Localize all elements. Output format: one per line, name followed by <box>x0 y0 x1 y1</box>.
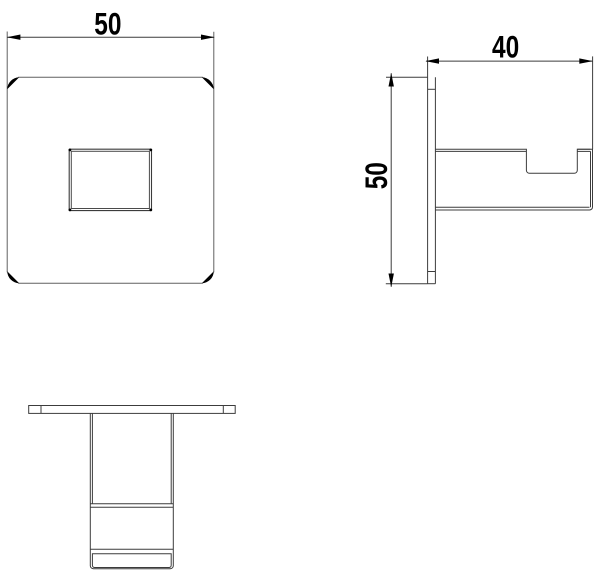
svg-text:40: 40 <box>492 30 519 65</box>
svg-text:50: 50 <box>359 162 394 189</box>
svg-text:50: 50 <box>94 7 121 42</box>
